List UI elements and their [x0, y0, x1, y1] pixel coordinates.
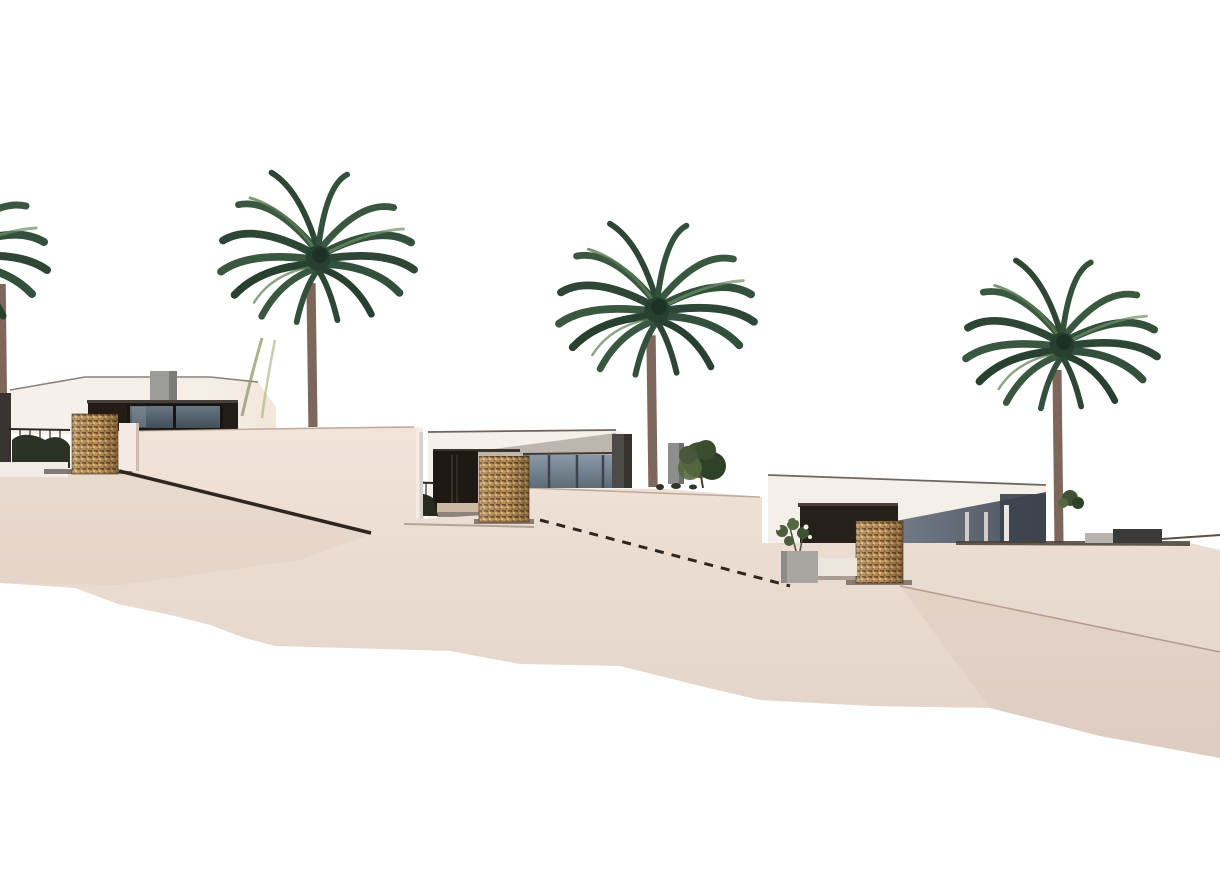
villa-2-planter [437, 503, 483, 512]
villa-2-porch-recess [433, 451, 478, 512]
terrace-bench [818, 558, 857, 576]
palm-trunk [1057, 370, 1059, 543]
villa-1-railing [8, 429, 70, 430]
edge-shrub [689, 485, 697, 490]
villa-1-roof-chimney-shade [169, 371, 177, 402]
villa-3 [768, 475, 1084, 543]
terrace-parapet-cap-shade [136, 423, 139, 471]
gabion-pillar-1 [72, 414, 118, 474]
villa-3-door-frame [984, 512, 988, 542]
villa-2-glazing [523, 455, 612, 488]
low-wall-light [1085, 533, 1113, 543]
villa-1-left-dark-slab [0, 393, 11, 462]
edge-shrub [671, 483, 681, 489]
render-canvas [0, 0, 1220, 870]
terrace-bench-shadow [818, 576, 857, 580]
gabion-pillar-3 [856, 521, 903, 583]
palm-trunk [311, 283, 313, 427]
gabion-pillar-2 [479, 456, 529, 522]
villa-2-right-dark-slab-edge [624, 434, 632, 488]
villa-2-glazing-header [523, 453, 612, 454]
villa-3-door-strip [1004, 505, 1009, 541]
villa-1-window-pane [176, 406, 220, 428]
villa-3-door-frame [965, 512, 969, 542]
palm-trunk [651, 335, 653, 487]
villa-1-porch-soffit [87, 400, 238, 404]
terrace-endcap-pole [420, 432, 424, 519]
architectural-render-scene [0, 0, 1220, 870]
edge-shrub [656, 484, 664, 490]
low-wall-dark [1113, 529, 1162, 543]
